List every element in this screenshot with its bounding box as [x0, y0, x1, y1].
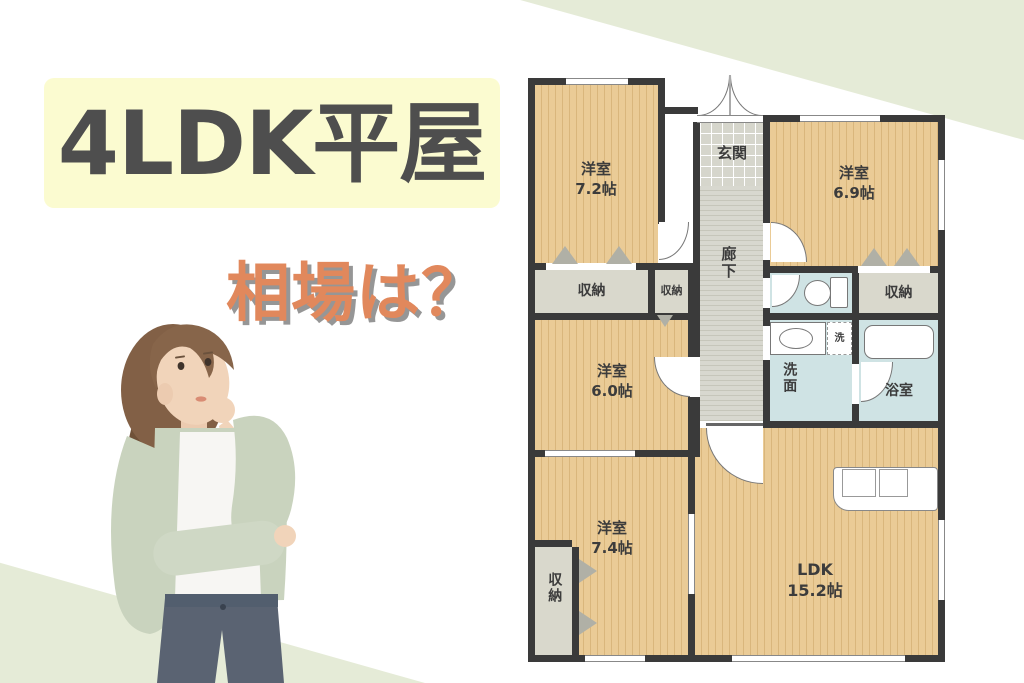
wall — [763, 360, 770, 421]
closet-opening — [858, 266, 930, 273]
sliding-door — [688, 514, 695, 594]
label-bedroom4: 洋室 7.4帖 — [562, 519, 662, 558]
closet-door-mark — [579, 611, 597, 635]
label-closet: 収納 — [545, 572, 563, 604]
wall — [528, 78, 535, 662]
washer-label: 洗 — [828, 332, 851, 345]
door-leaf — [706, 423, 763, 426]
closet-door-mark — [606, 246, 632, 264]
closet-door-mark — [861, 248, 887, 266]
label-closet: 収納 — [859, 284, 938, 302]
thinking-woman-photo — [95, 298, 340, 683]
room-name: 洋室 — [597, 362, 627, 380]
window — [938, 520, 945, 600]
label-ldk: LDK 15.2帖 — [765, 560, 865, 602]
room-size: 7.2帖 — [575, 180, 617, 198]
bathtub-icon — [864, 325, 934, 359]
room-size: 6.0帖 — [591, 382, 633, 400]
room-name: 洋室 — [839, 164, 869, 182]
window — [938, 160, 945, 230]
room-size: 7.4帖 — [591, 539, 633, 557]
wall — [763, 122, 770, 223]
label-closet: 収納 — [654, 284, 689, 298]
page-title: 4LDK平屋 — [44, 78, 500, 208]
wall — [658, 78, 665, 224]
label-bedroom2: 洋室 6.9帖 — [804, 164, 904, 203]
label-bedroom3: 洋室 6.0帖 — [562, 362, 662, 401]
wall — [693, 122, 700, 276]
closet-door-mark — [579, 559, 597, 583]
label-bathroom: 浴室 — [866, 382, 932, 400]
closet-door-mark — [552, 246, 578, 264]
wall — [528, 313, 700, 320]
kitchen-sink-icon — [842, 469, 876, 497]
window — [732, 655, 905, 662]
label-entrance: 玄関 — [702, 144, 762, 164]
kitchen-stove-icon — [879, 469, 908, 497]
floorplan: 洗 洋室 7.2帖 洋室 6.9帖 洋室 6.0帖 洋室 7.4帖 LDK 15… — [528, 64, 948, 664]
label-washroom: 洗面 — [780, 362, 798, 394]
window — [566, 78, 628, 85]
wall — [852, 404, 859, 422]
wall — [852, 273, 859, 313]
wall — [763, 266, 858, 273]
toilet-bowl-icon — [804, 280, 831, 306]
window — [800, 115, 880, 122]
wall — [688, 421, 700, 428]
room-name: LDK — [797, 560, 833, 579]
title-band: 4LDK平屋 — [44, 78, 500, 208]
wall — [572, 547, 579, 655]
room-name: 洋室 — [581, 160, 611, 178]
wall — [763, 421, 945, 428]
wall — [688, 263, 700, 357]
label-closet: 収納 — [535, 282, 648, 300]
closet-door-mark — [657, 315, 673, 327]
label-hallway: 廊下 — [718, 246, 738, 280]
label-bedroom1: 洋室 7.2帖 — [546, 160, 646, 199]
wall — [763, 313, 945, 320]
closet-door-mark — [894, 248, 920, 266]
room-size: 15.2帖 — [787, 581, 842, 600]
wall — [852, 320, 859, 364]
subtitle-question: 相場は？ — [226, 242, 486, 334]
window — [585, 655, 645, 662]
wall — [930, 266, 945, 273]
closet-opening — [546, 263, 636, 270]
wall — [658, 107, 700, 114]
entry-threshold — [697, 115, 763, 123]
thumbnail-canvas: 4LDK平屋 相場は？ — [0, 0, 1024, 683]
room-size: 6.9帖 — [833, 184, 875, 202]
room-hallway — [700, 186, 763, 421]
sink-basin-icon — [779, 328, 813, 349]
window — [545, 450, 635, 457]
entry-door-leaf — [729, 75, 731, 116]
room-name: 洋室 — [597, 519, 627, 537]
toilet-tank-icon — [830, 277, 848, 308]
washing-machine-icon: 洗 — [827, 322, 852, 355]
